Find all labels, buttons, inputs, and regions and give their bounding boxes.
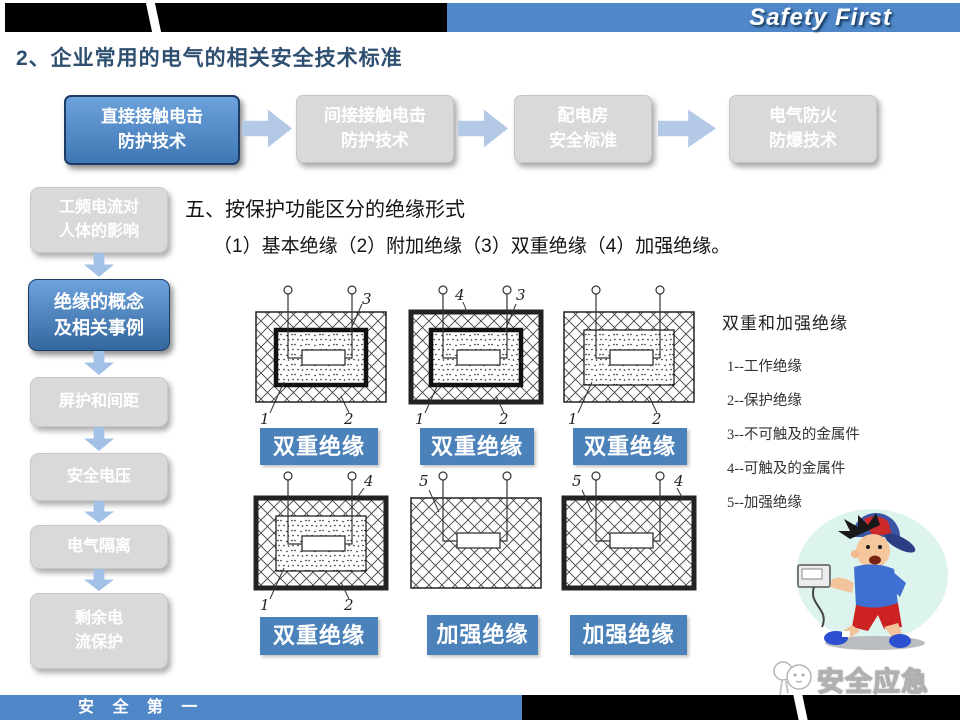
diagram-caption: 双重绝缘 [260,617,378,655]
flow-step-label: 安全标准 [515,132,651,151]
legend-item: 4--可触及的金属件 [727,457,845,478]
flow-step-label: 防护技术 [66,133,238,152]
diagram-caption: 加强绝缘 [427,615,538,655]
diagram-caption: 双重绝缘 [260,428,378,465]
diagram-label: 2 [651,410,662,427]
section-heading: 五、按保护功能区分的绝缘形式 [185,193,465,222]
sidebar-item-label: 及相关事例 [29,318,169,339]
header-blue-bar: Safety First [447,3,960,32]
insulation-diagram-double-2: 4 3 1 2 [403,282,548,427]
sidebar-item-label: 人体的影响 [31,223,167,241]
sidebar-item-safe-voltage: 安全电压 [30,453,168,501]
terminal-icon [439,286,447,294]
diagram-label: 5 [572,472,582,490]
legend-item: 3--不可触及的金属件 [727,423,860,444]
footer-black-bar [522,695,960,720]
right-arrow-icon [458,107,508,150]
diagram-label: 4 [454,286,465,304]
conductor [302,350,345,365]
down-arrow-icon [84,351,114,375]
terminal-icon [592,286,600,294]
sidebar-item-label: 剩余电 [31,610,167,628]
diagram-caption: 双重绝缘 [420,428,534,465]
diagram-label: 4 [363,472,374,490]
flow-step-fire-explosion: 电气防火 防爆技术 [729,95,877,163]
sidebar-item-electrical-isolation: 电气隔离 [30,525,168,569]
page-title: 2、企业常用的电气的相关安全技术标准 [16,42,403,72]
sidebar-item-label: 绝缘的概念 [29,292,169,313]
flow-step-label: 防爆技术 [730,132,876,151]
insulation-diagram-double-1: 3 1 2 [248,282,393,427]
flow-step-label: 配电房 [515,107,651,126]
diagram-label: 1 [260,596,270,613]
diagram-label: 2 [498,410,509,427]
terminal-icon [284,286,292,294]
diagram-label: 5 [419,472,429,490]
diagram-label: 1 [568,410,578,427]
terminal-icon [284,472,292,480]
brand-text: Safety First [749,4,892,32]
conductor [610,533,653,548]
sidebar-item-label: 电气隔离 [31,538,167,556]
flow-step-label: 防护技术 [297,132,453,151]
diagram-caption: 加强绝缘 [570,615,687,655]
watermark-mascot-icon [770,657,814,697]
sidebar-item-label: 工频电流对 [31,199,167,217]
right-arrow-icon [658,107,716,150]
conductor [610,350,653,365]
diagram-caption: 双重绝缘 [573,428,687,465]
down-arrow-icon [84,501,114,523]
terminal-icon [592,472,600,480]
legend-item: 1--工作绝缘 [727,355,802,376]
conductor [457,350,500,365]
flow-step-label: 间接接触电击 [297,107,453,126]
flow-step-label: 电气防火 [730,107,876,126]
conductor [302,536,345,551]
terminal-icon [503,286,511,294]
mascot-cartoon [780,505,952,657]
insulation-diagram-reinforced-2: 5 4 [556,468,701,613]
insulation-diagram-double-4: 4 1 2 [248,468,393,613]
terminal-icon [503,472,511,480]
diagram-label: 1 [415,410,425,427]
down-arrow-icon [84,253,114,277]
diagram-label: 2 [343,596,354,613]
flow-step-power-room: 配电房 安全标准 [514,95,652,163]
insulation-diagram-double-3: 1 2 [556,282,701,427]
sidebar-item-insulation-concept: 绝缘的概念 及相关事例 [28,279,170,351]
flow-step-direct-contact: 直接接触电击 防护技术 [64,95,240,165]
flow-step-indirect-contact: 间接接触电击 防护技术 [296,95,454,163]
conductor [457,533,500,548]
right-arrow-icon [242,107,292,150]
terminal-icon [348,472,356,480]
footer-slogan: 安 全 第 一 [78,695,522,720]
sidebar-item-label: 流保护 [31,634,167,652]
down-arrow-icon [84,427,114,451]
slide: Safety First 2、企业常用的电气的相关安全技术标准 直接接触电击 防… [0,0,960,720]
diagram-label: 3 [362,290,372,308]
footer-blue-bar: 安 全 第 一 [0,695,522,720]
insulation-diagram-reinforced-1: 5 [403,468,548,613]
sidebar-item-shielding: 屏护和间距 [30,377,168,427]
diagram-label: 4 [673,472,684,490]
diagram-label: 2 [343,410,354,427]
section-subheading: （1）基本绝缘（2）附加绝缘（3）双重绝缘（4）加强绝缘。 [213,231,730,258]
sidebar-item-residual-current: 剩余电 流保护 [30,593,168,669]
flow-step-label: 直接接触电击 [66,108,238,127]
terminal-icon [656,286,664,294]
diagram-label: 1 [260,410,270,427]
sidebar-item-label: 屏护和间距 [31,393,167,411]
watermark-text: 安全应急 [817,660,929,699]
header-black-bar [5,3,447,32]
terminal-icon [439,472,447,480]
legend-title: 双重和加强绝缘 [722,309,848,334]
sidebar-item-label: 安全电压 [31,468,167,486]
terminal-icon [348,286,356,294]
legend-item: 2--保护绝缘 [727,389,802,410]
terminal-icon [656,472,664,480]
sidebar-item-current-effect: 工频电流对 人体的影响 [30,187,168,253]
diagram-label: 3 [516,286,526,304]
down-arrow-icon [84,569,114,591]
